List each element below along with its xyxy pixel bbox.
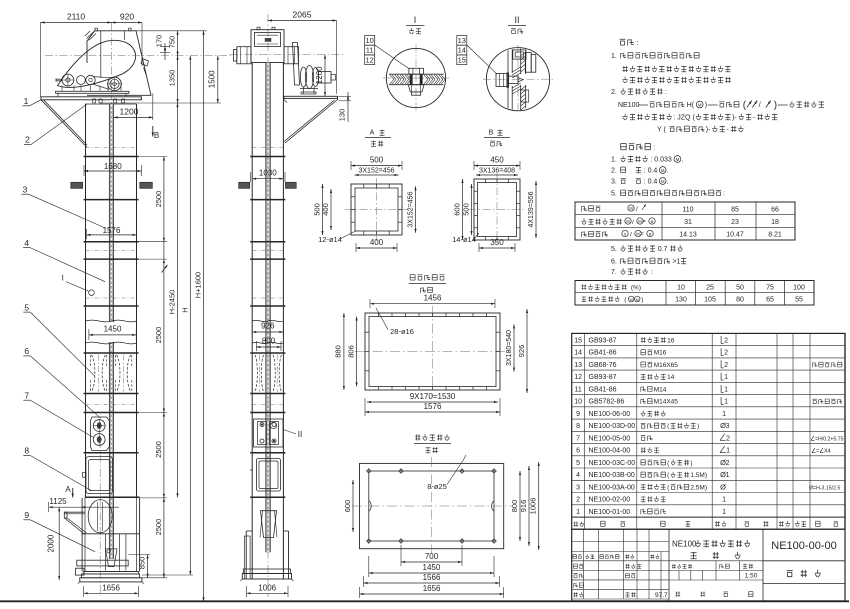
svg-text:850: 850 [137,557,146,570]
svg-text:14: 14 [458,46,466,55]
svg-text:80: 80 [736,297,744,304]
svg-text:18: 18 [771,219,779,226]
svg-text:=H/0.2+5.75: =H/0.2+5.75 [815,436,844,442]
svg-text:10: 10 [574,399,582,406]
svg-text:2000: 2000 [47,534,56,552]
svg-text:1500: 1500 [208,70,217,88]
svg-text:M: M [636,298,639,302]
svg-text:85: 85 [731,207,739,214]
svg-text:1450: 1450 [104,325,122,334]
svg-text:100: 100 [793,285,805,292]
svg-text:105: 105 [704,297,716,304]
svg-text:GB93-87: GB93-87 [589,374,617,381]
svg-text:14-ø14: 14-ø14 [452,235,476,244]
svg-text:97.7: 97.7 [655,592,668,599]
svg-text:: 0.4: : 0.4 [644,179,658,186]
svg-text:2.: 2. [611,89,617,96]
svg-text:2065: 2065 [293,10,312,20]
svg-text:13: 13 [574,362,582,369]
svg-text:=: = [642,219,646,225]
svg-text:1006: 1006 [258,584,276,593]
svg-text:1.: 1. [611,157,617,164]
svg-text:2.: 2. [611,168,617,175]
svg-text:1125: 1125 [49,497,67,506]
svg-text:H: H [180,307,189,312]
svg-text:NE100-03A-00: NE100-03A-00 [589,484,635,491]
svg-text:M: M [676,157,680,162]
svg-text:NE100-04-00: NE100-04-00 [589,448,631,455]
svg-text:1576: 1576 [424,402,442,411]
svg-text:2: 2 [726,460,730,467]
svg-text::: : [665,89,667,96]
svg-text:NE100: NE100 [672,540,697,549]
svg-text:800: 800 [510,500,519,513]
svg-text:NE100-00-00: NE100-00-00 [771,540,836,552]
svg-text:8-ø25: 8-ø25 [427,482,447,491]
svg-text:1.5M): 1.5M) [690,472,707,479]
svg-text:600: 600 [343,500,352,513]
svg-text:Ø=H-3.15/2.5: Ø=H-3.15/2.5 [809,485,840,491]
svg-text:NE100-03D-00: NE100-03D-00 [589,423,636,430]
svg-text:M: M [629,206,633,211]
svg-text:5.: 5. [611,191,617,198]
svg-text:110: 110 [682,207,693,214]
svg-text:/: / [759,102,761,109]
svg-text:M: M [626,219,630,224]
svg-text:28-ø16: 28-ø16 [390,327,414,336]
svg-text:7.: 7. [611,269,617,276]
svg-text:31: 31 [684,219,692,226]
svg-text:)-: )- [732,115,737,122]
svg-text:NE100-05-00: NE100-05-00 [589,435,631,442]
svg-text:1680: 1680 [104,162,122,171]
svg-text:ø: ø [651,219,654,224]
svg-text:11: 11 [574,386,581,393]
svg-text:14.13: 14.13 [679,232,697,239]
svg-text:450: 450 [490,156,504,165]
svg-text:M16X65: M16X65 [654,362,679,369]
svg-text:2: 2 [25,135,30,145]
svg-text:500: 500 [370,156,384,165]
svg-text:12: 12 [574,374,582,381]
svg-text:600: 600 [453,203,462,216]
svg-text:3.: 3. [611,179,617,186]
svg-text:1: 1 [726,448,730,455]
svg-text:H+1600: H+1600 [194,272,203,298]
svg-text:7: 7 [24,390,29,400]
svg-text:A: A [370,130,375,137]
svg-text:M16: M16 [654,350,667,357]
svg-text:): ) [774,100,777,111]
svg-text:4X139=556: 4X139=556 [528,191,535,227]
svg-text::: : [651,269,653,276]
svg-text:5.: 5. [611,246,617,253]
svg-text:1566: 1566 [423,573,441,582]
svg-text:25: 25 [706,285,714,292]
svg-text:5: 5 [576,460,580,467]
svg-text:B: B [154,131,159,140]
svg-text:NE100-02-00: NE100-02-00 [589,497,631,504]
svg-text:)-: )- [706,127,711,134]
svg-text:1200: 1200 [315,66,324,84]
svg-text:1:50: 1:50 [745,573,758,580]
svg-text:926: 926 [517,345,526,358]
svg-text:65: 65 [766,297,774,304]
svg-text:8: 8 [24,446,29,456]
svg-text:2: 2 [724,362,728,369]
svg-text:H-2450: H-2450 [167,290,176,315]
svg-text:M: M [661,168,665,173]
svg-text:1576: 1576 [103,226,121,235]
svg-text:I: I [414,15,417,25]
svg-text:8.21: 8.21 [768,232,782,239]
svg-text:75: 75 [766,285,774,292]
svg-text:.: . [681,157,683,164]
svg-text:8: 8 [576,423,580,430]
svg-text:II: II [514,15,519,25]
svg-text:1: 1 [722,497,726,504]
svg-text:6: 6 [24,346,29,356]
svg-text:NE100-01-00: NE100-01-00 [589,509,631,516]
svg-text:ø: ø [649,232,652,237]
svg-text:500: 500 [462,203,471,216]
svg-text:15: 15 [574,337,582,344]
svg-text:NE100-03C-00: NE100-03C-00 [589,460,636,467]
svg-text:): ) [641,297,643,304]
svg-text:I: I [62,274,64,283]
svg-text:1200: 1200 [120,106,139,116]
svg-text:1006: 1006 [529,498,538,515]
svg-text:10.47: 10.47 [726,232,744,239]
svg-text:2: 2 [724,350,728,357]
svg-text:10: 10 [677,285,685,292]
svg-text:916: 916 [519,500,528,513]
svg-text:1: 1 [724,399,728,406]
svg-text:1: 1 [576,509,580,516]
svg-text:806: 806 [347,345,356,358]
svg-text:4: 4 [576,472,580,479]
svg-text:1030: 1030 [259,169,277,178]
svg-text:2500: 2500 [154,519,163,536]
svg-text:GB68-76: GB68-76 [589,362,617,369]
svg-text:3: 3 [23,184,28,194]
svg-text:400: 400 [370,238,384,247]
svg-text:II: II [298,430,302,439]
svg-text:/: / [632,219,634,226]
svg-text:NE100: NE100 [618,102,640,109]
svg-text:Y (: Y ( [657,127,666,134]
svg-text:350: 350 [490,238,504,247]
svg-text:920: 920 [120,12,134,22]
svg-text:1450: 1450 [423,563,441,572]
svg-text:3: 3 [576,484,580,491]
svg-text:3X152=456: 3X152=456 [358,167,394,174]
svg-text:NE100-06-00: NE100-06-00 [589,411,631,418]
svg-text:1: 1 [724,386,728,393]
svg-text:1: 1 [24,96,29,106]
svg-text:55: 55 [795,297,803,304]
svg-text:9X170=1530: 9X170=1530 [410,392,456,401]
svg-text:1: 1 [722,411,726,418]
svg-text:15: 15 [458,55,466,64]
svg-text:9: 9 [24,510,29,520]
svg-text:2: 2 [576,497,580,504]
svg-text:170: 170 [155,35,164,48]
svg-text:=: = [816,449,819,455]
svg-text:12: 12 [366,55,374,64]
svg-text::: : [653,143,655,152]
svg-text:13: 13 [458,36,466,45]
svg-text:6.: 6. [611,259,617,266]
svg-text:1656: 1656 [102,584,120,593]
svg-text:50: 50 [736,285,744,292]
svg-text:): ) [697,423,699,430]
svg-text:(%): (%) [631,285,641,292]
svg-text::: : [723,191,725,198]
svg-text:130: 130 [675,297,687,304]
svg-text:NE100-03B-00: NE100-03B-00 [589,472,635,479]
svg-text:/: / [636,206,638,213]
svg-text:=: = [640,232,644,238]
svg-text:5: 5 [24,302,29,312]
svg-text:M: M [630,298,633,302]
svg-text:2110: 2110 [67,12,86,22]
svg-text:1456: 1456 [424,294,442,303]
svg-text:2: 2 [724,337,728,344]
svg-text:M: M [698,103,702,108]
svg-text:9: 9 [576,411,580,418]
svg-text:M14X45: M14X45 [654,399,679,406]
svg-text::: : [637,38,639,47]
svg-text:: 0.033: : 0.033 [650,157,672,164]
svg-text:GB41-86: GB41-86 [589,386,617,393]
svg-text:GB41-86: GB41-86 [589,350,617,357]
svg-text:/: / [630,232,632,239]
svg-text:3X180=540: 3X180=540 [506,330,513,366]
svg-text:14: 14 [574,350,582,357]
svg-text:M14: M14 [654,386,667,393]
svg-text:.: . [667,179,669,186]
svg-text:6: 6 [576,448,580,455]
svg-text:3: 3 [726,423,730,430]
svg-text:66: 66 [771,207,779,214]
svg-text:7: 7 [576,435,580,442]
svg-text:2: 2 [726,435,730,442]
svg-text:B: B [489,130,494,137]
svg-text:750: 750 [168,36,177,49]
svg-text:800: 800 [262,337,276,346]
svg-text:12-ø14: 12-ø14 [318,235,342,244]
svg-text:A: A [65,485,71,494]
svg-text:4: 4 [24,238,29,248]
svg-text:GB5782-86: GB5782-86 [589,399,625,406]
svg-text:2500: 2500 [154,441,163,458]
svg-text:11: 11 [366,46,374,55]
svg-text:1: 1 [724,374,728,381]
svg-text:1350: 1350 [168,70,177,87]
svg-text:23: 23 [731,219,739,226]
svg-text:10: 10 [366,36,374,45]
svg-text:1.: 1. [611,53,617,60]
svg-text:130: 130 [338,109,347,122]
svg-text:Ø: Ø [720,482,726,491]
svg-text:926: 926 [261,322,275,331]
svg-text:2.5M): 2.5M) [690,484,707,491]
svg-text:1656: 1656 [423,584,441,593]
svg-text:0.7: 0.7 [658,246,668,253]
svg-text:2500: 2500 [154,191,163,208]
svg-text:14: 14 [667,374,675,381]
svg-text:X4: X4 [824,449,831,455]
svg-text:>1: >1 [672,259,680,266]
svg-text:): ) [690,460,692,467]
svg-text:GB93-87: GB93-87 [589,337,617,344]
svg-text:: JZQ (: : JZQ ( [673,115,695,122]
svg-text:M: M [661,179,665,184]
svg-text:700: 700 [425,552,439,561]
svg-text:400: 400 [321,203,330,216]
svg-text:16: 16 [667,337,675,344]
svg-text:2500: 2500 [154,327,163,344]
svg-text:): ) [705,102,707,109]
svg-text:H(: H( [687,102,695,109]
svg-text:1: 1 [722,509,726,516]
svg-text:880: 880 [334,345,343,358]
svg-text:3X136=408: 3X136=408 [479,167,515,174]
svg-text:3X152=456: 3X152=456 [408,191,415,227]
svg-text:: 0.4: : 0.4 [644,168,658,175]
svg-text:1: 1 [726,472,730,479]
svg-text:.: . [667,168,669,175]
